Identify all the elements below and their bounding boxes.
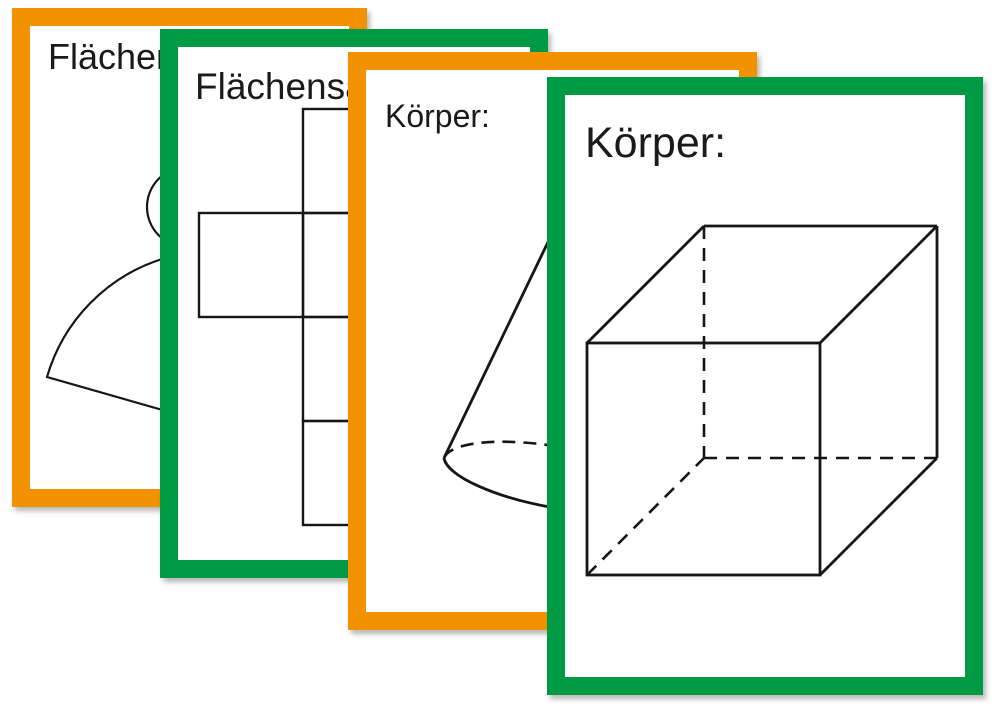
- cone-left-slant-edge: [444, 240, 549, 458]
- cube-top-right-edge: [820, 226, 937, 343]
- cube-top-left-edge: [587, 226, 704, 343]
- cube-net-square-left-flap: [199, 213, 303, 317]
- cube-hidden-bottom-left-edge: [587, 458, 704, 575]
- card-cube-face: Körper:: [565, 95, 965, 677]
- card-cube: Körper:: [547, 77, 983, 695]
- cube-drawing: [565, 95, 965, 677]
- cube-bottom-right-edge: [820, 458, 937, 575]
- card-stack: Flächensatz: Flächensatz: Körp: [0, 0, 1000, 708]
